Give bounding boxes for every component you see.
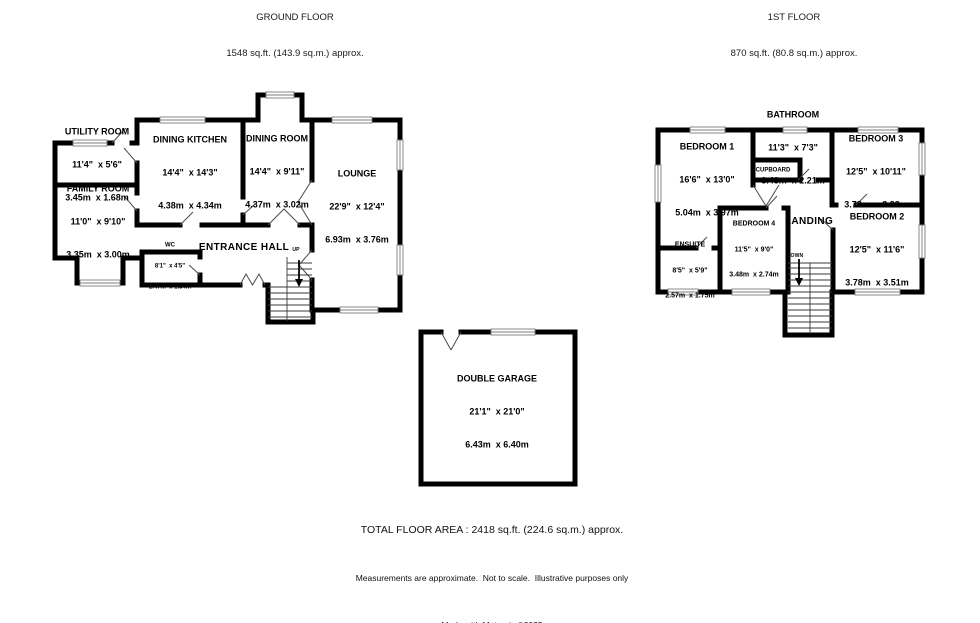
garage-windows — [491, 329, 535, 335]
room-label-dining-room: DINING ROOM 14'4" x 9'11" 4.37m x 3.02m — [245, 112, 309, 233]
ground-floor-header: GROUND FLOOR 1548 sq.ft. (143.9 sq.m.) a… — [226, 0, 363, 84]
room-label-family-room: FAMILY ROOM 11'0" x 9'10" 3.35m x 3.00m — [66, 162, 130, 283]
floorplan-page: GROUND FLOOR 1548 sq.ft. (143.9 sq.m.) a… — [0, 0, 980, 623]
room-label-cupboard: CUPBOARD — [756, 154, 791, 189]
garage-doors — [441, 332, 461, 350]
room-label-bedroom2: BEDROOM 2 12'5" x 11'6" 3.78m x 3.51m — [845, 190, 909, 311]
room-label-double-garage: DOUBLE GARAGE 21'1" x 21'0" 6.43m x 6.40… — [457, 352, 537, 473]
room-label-bedroom4: BEDROOM 4 11'5" x 9'0" 3.48m x 2.74m — [729, 203, 778, 297]
total-floor-area: TOTAL FLOOR AREA : 2418 sq.ft. (224.6 sq… — [356, 524, 629, 537]
room-label-lounge: LOUNGE 22'9" x 12'4" 6.93m x 3.76m — [325, 147, 389, 268]
room-label-entrance-hall: ENTRANCE HALL — [199, 218, 289, 278]
room-label-landing: LANDING — [785, 192, 833, 252]
room-label-wc: WC 8'1" x 4'5" 2.47m x 1.34m — [149, 229, 191, 306]
first-floor-title: 1ST FLOOR — [731, 12, 858, 24]
credit: Made with Metropix ©2025 — [356, 620, 629, 623]
first-stairs — [788, 259, 832, 334]
footer: TOTAL FLOOR AREA : 2418 sq.ft. (224.6 sq… — [356, 488, 629, 623]
room-label-ensuite: ENSUITE 8'5" x 5'9" 2.57m x 1.75m — [665, 224, 714, 318]
stairs-up-label: UP — [292, 247, 299, 253]
ground-floor-area: 1548 sq.ft. (143.9 sq.m.) approx. — [226, 48, 363, 60]
room-label-dining-kitchen: DINING KITCHEN 14'4" x 14'3" 4.38m x 4.3… — [153, 113, 227, 234]
first-floor-header: 1ST FLOOR 870 sq.ft. (80.8 sq.m.) approx… — [731, 0, 858, 84]
room-label-bathroom: BATHROOM 11'3" x 7'3" 3.43m x 2.21m — [761, 88, 825, 209]
ground-floor-title: GROUND FLOOR — [226, 12, 363, 24]
stairs-down-label: DOWN — [787, 253, 804, 259]
first-floor-area: 870 sq.ft. (80.8 sq.m.) approx. — [731, 48, 858, 60]
disclaimer: Measurements are approximate. Not to sca… — [356, 573, 629, 584]
